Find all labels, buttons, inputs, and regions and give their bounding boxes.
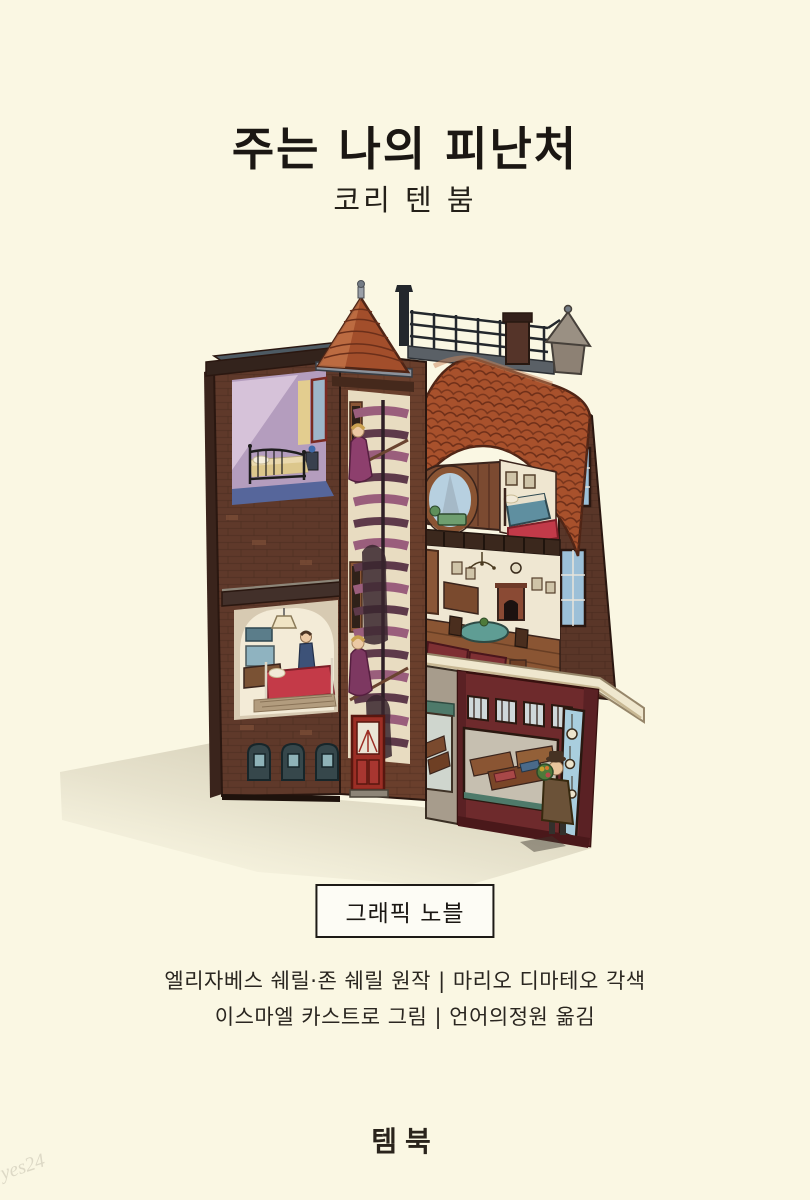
left-building bbox=[204, 342, 354, 802]
transom-window bbox=[496, 699, 516, 724]
clock-icon bbox=[567, 729, 577, 739]
chimney bbox=[503, 313, 532, 364]
chair bbox=[449, 616, 462, 636]
category-badge-label: 그래픽 노블 bbox=[345, 901, 464, 927]
cellar-windows bbox=[248, 744, 338, 780]
curtain bbox=[298, 380, 310, 445]
green-bed bbox=[438, 514, 466, 525]
attic-level bbox=[406, 460, 560, 556]
stovepipe-icon bbox=[399, 292, 409, 346]
purple-bedroom bbox=[232, 370, 334, 505]
sideboard bbox=[444, 582, 478, 614]
transom-window bbox=[468, 696, 488, 721]
flower-bouquet-icon bbox=[537, 764, 553, 780]
credits-block: 엘리자베스 쉐릴·존 쉐릴 원작 | 마리오 디마테오 각색 이스마엘 카스트로… bbox=[0, 963, 810, 1035]
basement-room bbox=[234, 600, 338, 720]
wall-clock-icon bbox=[511, 563, 521, 573]
bedroom-window bbox=[312, 378, 326, 442]
chair bbox=[515, 628, 528, 648]
lamp-icon bbox=[272, 616, 296, 628]
transom-window bbox=[524, 702, 544, 727]
book-cover: 주는 나의 피난처 코리 텐 붐 bbox=[0, 0, 810, 1200]
publisher-logo: 템북 bbox=[0, 1120, 810, 1160]
credits-line: 엘리자베스 쉐릴·존 쉐릴 원작 | 마리오 디마테오 각색 bbox=[0, 963, 810, 999]
credits-line: 이스마엘 카스트로 그림 | 언어의정원 옮김 bbox=[0, 999, 810, 1035]
clock-icon bbox=[566, 760, 575, 769]
tower-door bbox=[350, 716, 388, 797]
attic-bedroom bbox=[500, 460, 558, 546]
category-badge: 그래픽 노블 bbox=[315, 884, 494, 938]
kitchen-cabinet bbox=[246, 628, 272, 641]
